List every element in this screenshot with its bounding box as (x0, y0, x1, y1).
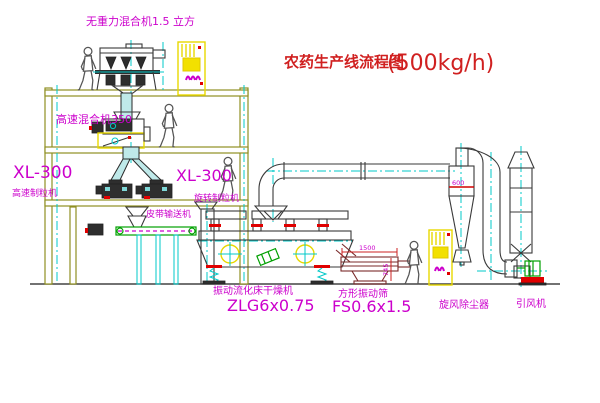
gravity-free-mixer (93, 44, 165, 120)
dryer-spring-feet (203, 265, 333, 284)
granulator-left (96, 184, 132, 199)
label-granulator-left-model: XL-300 (13, 163, 72, 183)
page-title: 农药生产线流程图 (283, 53, 404, 71)
dim-cyclone-level: 600 (452, 179, 464, 187)
diagram-canvas: 无重力混合机1.5 立方 农药生产线流程图 (500kg/h) 高速混合机350… (0, 0, 600, 403)
label-belt-conveyor: 皮带输送机 (146, 208, 191, 220)
induced-draft-fan (505, 260, 546, 285)
cyclone-outlet-pipe (456, 148, 507, 274)
control-cabinet-bottom (429, 230, 452, 285)
person-top-floor (78, 47, 96, 90)
label-granulator-right-name: 旋转制粒机 (194, 192, 239, 204)
person-ground (404, 241, 422, 284)
label-cyclone: 旋风除尘器 (439, 298, 489, 311)
vibrating-sieve (341, 248, 410, 284)
label-granulator-right-model: XL-300 (176, 166, 232, 185)
label-fan: 引风机 (516, 297, 546, 310)
discharge-funnel (126, 207, 148, 227)
granulator-right (136, 184, 172, 199)
label-granulator-left-name: 高速制粒机 (12, 187, 57, 199)
label-top-mixer: 无重力混合机1.5 立方 (86, 14, 195, 28)
dryer-vent-stubs (209, 219, 329, 231)
page-title-capacity: (500kg/h) (387, 51, 494, 76)
person-second-floor (159, 104, 177, 147)
cabinet-display-marks (435, 268, 444, 272)
dim-sieve-height: 745 (382, 264, 390, 276)
dryer-vibration-motor (257, 249, 279, 266)
label-floor-mixer: 高速混合机350 (56, 112, 132, 126)
label-sieve-model: FS0.6x1.5 (332, 297, 411, 316)
belt-conveyor (85, 224, 196, 284)
cabinet-display-marks (186, 77, 200, 81)
process-flow-diagram: 无重力混合机1.5 立方 农药生产线流程图 (500kg/h) 高速混合机350… (0, 0, 600, 403)
control-cabinet-top (178, 42, 205, 95)
label-dryer-model: ZLG6x0.75 (227, 296, 315, 315)
fluid-bed-dryer (197, 211, 353, 284)
dryer-discharge-chute (336, 244, 356, 262)
dim-sieve-length: 1500 (359, 244, 376, 252)
